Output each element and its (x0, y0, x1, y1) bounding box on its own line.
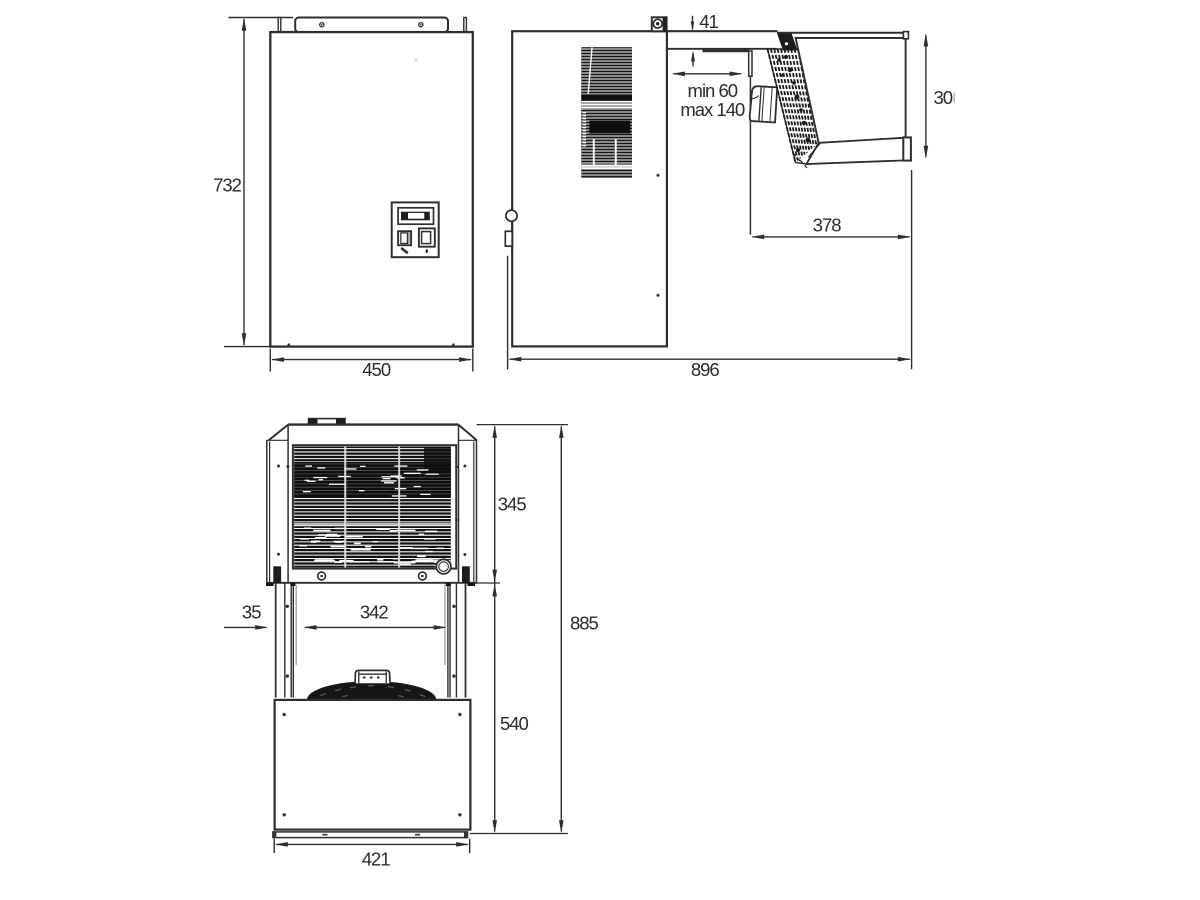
svg-text:450: 450 (362, 359, 391, 380)
svg-text:885: 885 (570, 612, 599, 633)
svg-text:30: 30 (934, 87, 953, 108)
svg-text:35: 35 (242, 602, 261, 623)
svg-text:421: 421 (362, 848, 391, 869)
svg-text:378: 378 (813, 214, 842, 235)
svg-text:min 60: min 60 (688, 80, 738, 101)
svg-text:732: 732 (213, 175, 242, 196)
svg-text:342: 342 (360, 602, 389, 623)
svg-text:540: 540 (500, 713, 529, 734)
svg-text:896: 896 (691, 359, 720, 380)
svg-text:max 140: max 140 (680, 99, 745, 120)
svg-text:41: 41 (699, 11, 718, 32)
svg-text:345: 345 (498, 493, 527, 514)
